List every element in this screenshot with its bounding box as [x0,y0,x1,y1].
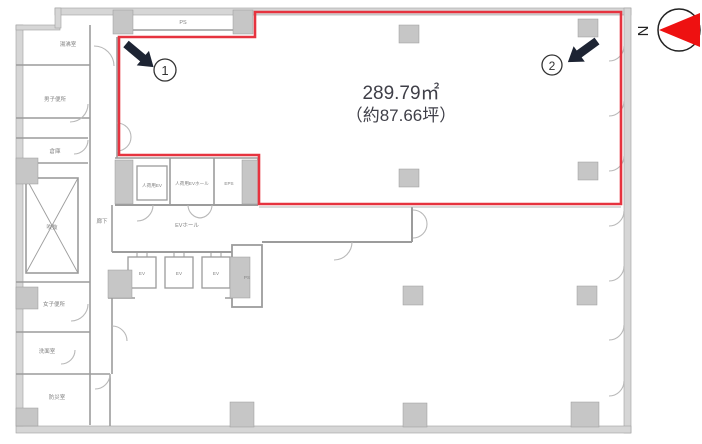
interior-walls [16,25,621,426]
area-tsubo-text: （約87.66坪） [346,106,457,125]
area-sqm-text: 289.79㎡ [362,81,439,104]
entrance-markers: 1 2 [120,33,603,81]
room-label-ps-center: PS [244,275,250,280]
room-label-ev-3: EV [213,271,220,276]
entrance-marker-2-number: 2 [549,59,556,73]
room-label-void-shaft: 吹抜 [46,223,58,231]
entrance-arrow-2 [562,33,602,70]
compass-north-letter: N [635,26,652,37]
room-label-freight-ev: 人荷用EV [142,182,163,189]
door-arcs [61,46,624,396]
room-label-pantry: 湯沸室 [60,40,77,48]
floor-plan-page: PS 湯沸室 男子便所 倉庫 吹抜 廊下 人荷用EV 人荷用EVホール EPS … [0,0,702,444]
entrance-marker-1-number: 1 [161,63,168,78]
room-label-eps: EPS [224,181,233,186]
area-label: 289.79㎡ （約87.66坪） [346,81,457,125]
compass: N [635,9,700,51]
room-label-corridor: 廊下 [96,217,108,225]
room-label-ev-2: EV [176,271,183,276]
room-label-ev-hall: EVホール [175,222,199,229]
room-label-washroom: 洗面室 [39,347,56,355]
floor-plan-image: PS 湯沸室 男子便所 倉庫 吹抜 廊下 人荷用EV 人荷用EVホール EPS … [0,0,702,444]
room-label-disaster-room: 防災室 [49,393,66,401]
room-label-freight-ev-hall: 人荷用EVホール [175,180,209,187]
room-label-womens-toilet: 女子便所 [43,300,66,308]
room-label-storage: 倉庫 [49,147,61,155]
room-label-mens-toilet: 男子便所 [44,95,67,103]
room-label-ev-1: EV [139,271,146,276]
room-label-ps-top: PS [179,20,187,26]
outer-walls [16,8,631,433]
